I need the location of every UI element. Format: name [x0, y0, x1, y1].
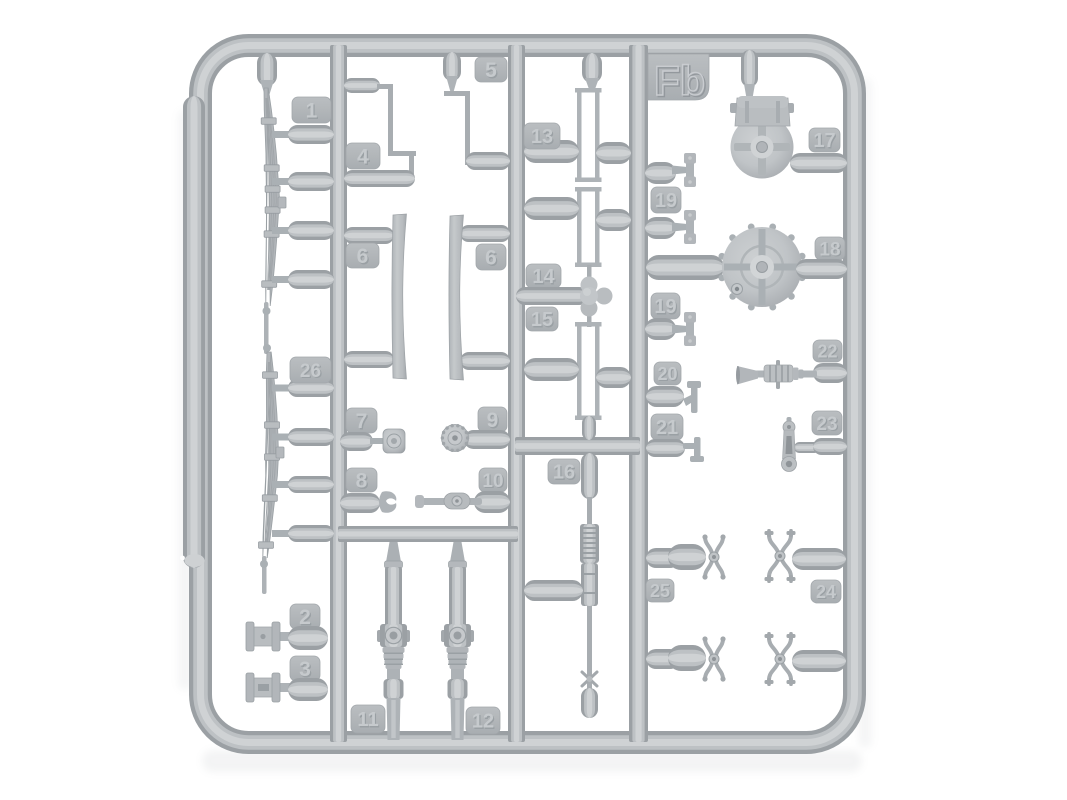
svg-text:22: 22	[817, 342, 837, 362]
svg-text:12: 12	[472, 711, 494, 733]
svg-text:6: 6	[485, 247, 497, 270]
svg-text:14: 14	[532, 266, 555, 288]
svg-text:20: 20	[657, 364, 677, 384]
svg-text:19: 19	[654, 296, 676, 318]
svg-text:4: 4	[357, 146, 369, 169]
svg-text:7: 7	[356, 410, 368, 433]
svg-text:26: 26	[300, 361, 321, 382]
svg-text:18: 18	[819, 239, 840, 260]
svg-text:5: 5	[485, 59, 497, 82]
svg-text:1: 1	[306, 100, 318, 123]
svg-text:9: 9	[487, 409, 499, 432]
svg-text:13: 13	[531, 126, 553, 148]
svg-text:21: 21	[656, 417, 678, 439]
svg-text:23: 23	[816, 414, 837, 435]
svg-text:3: 3	[299, 658, 311, 681]
svg-text:16: 16	[553, 462, 575, 484]
svg-text:17: 17	[813, 130, 835, 152]
svg-text:6: 6	[357, 245, 369, 268]
svg-text:19: 19	[655, 190, 677, 212]
svg-text:24: 24	[816, 582, 836, 602]
svg-text:11: 11	[357, 709, 378, 731]
svg-text:15: 15	[531, 309, 553, 331]
svg-text:10: 10	[482, 471, 503, 492]
svg-text:8: 8	[356, 470, 368, 493]
svg-text:Fb: Fb	[654, 57, 705, 104]
svg-text:25: 25	[650, 581, 670, 601]
svg-text:2: 2	[299, 606, 311, 629]
